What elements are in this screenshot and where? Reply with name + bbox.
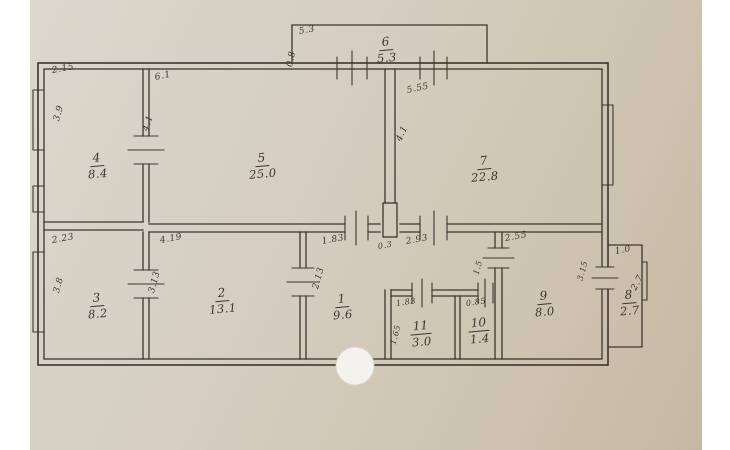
outer-wall: [38, 63, 608, 365]
room-2-number: 2: [214, 286, 229, 302]
room-10-label: 101.4: [467, 313, 491, 345]
wall-11-10: [455, 296, 460, 359]
room-7-label: 722.8: [469, 151, 499, 184]
door-room9: [483, 248, 514, 268]
hole-punch: [336, 347, 374, 385]
wall-1-11: [385, 290, 391, 359]
room-10-area: 1.4: [469, 331, 491, 345]
room-8-number: 8: [621, 288, 636, 304]
room-11-label: 113.0: [409, 316, 433, 348]
room-5-label: 525.0: [247, 148, 277, 181]
outer-wall-inner: [44, 69, 602, 359]
room-9-number: 9: [536, 289, 551, 305]
balcony-window-room7: [420, 51, 447, 85]
room-9-area: 8.0: [534, 304, 555, 318]
floorplan-walls: [0, 0, 730, 450]
room-10-number: 10: [467, 316, 489, 332]
room-5-area: 25.0: [249, 166, 278, 180]
wall-9-left: [495, 232, 502, 359]
room-9-label: 98.0: [533, 286, 555, 318]
door-room5: [345, 211, 368, 245]
balcony-door-room5: [337, 51, 367, 85]
room-3-area: 8.2: [87, 306, 108, 320]
room-1-area: 9.6: [332, 307, 353, 321]
room-7-number: 7: [476, 154, 491, 170]
room-6-area: 5.3: [376, 50, 397, 64]
room-2-area: 13.1: [209, 301, 238, 315]
room-3-label: 38.2: [86, 288, 108, 320]
room-6-number: 6: [378, 35, 393, 51]
room-3-number: 3: [89, 291, 104, 307]
wall-5-7: [385, 69, 395, 203]
floor-plan: 19.6213.138.248.4525.065.3722.882.798.01…: [0, 0, 730, 450]
room-7-area: 22.8: [471, 169, 500, 183]
room-11-number: 11: [409, 319, 431, 335]
room-2-label: 213.1: [207, 283, 237, 316]
room-6-label: 65.3: [375, 32, 397, 64]
room-4-number: 4: [89, 151, 104, 167]
door-room4: [128, 136, 164, 164]
room-1-label: 19.6: [331, 289, 353, 321]
room-5-number: 5: [254, 151, 269, 167]
room-4-label: 48.4: [86, 148, 108, 180]
wall-4-3: [44, 222, 143, 230]
wall-left-column: [143, 69, 149, 359]
room-4-area: 8.4: [87, 166, 108, 180]
wall-middle: [149, 224, 602, 232]
room-8-area: 2.7: [619, 303, 640, 317]
room-1-number: 1: [334, 292, 349, 308]
wall-11-10-top: [391, 290, 478, 296]
room-11-area: 3.0: [411, 334, 433, 348]
vent-shaft: [383, 203, 397, 237]
